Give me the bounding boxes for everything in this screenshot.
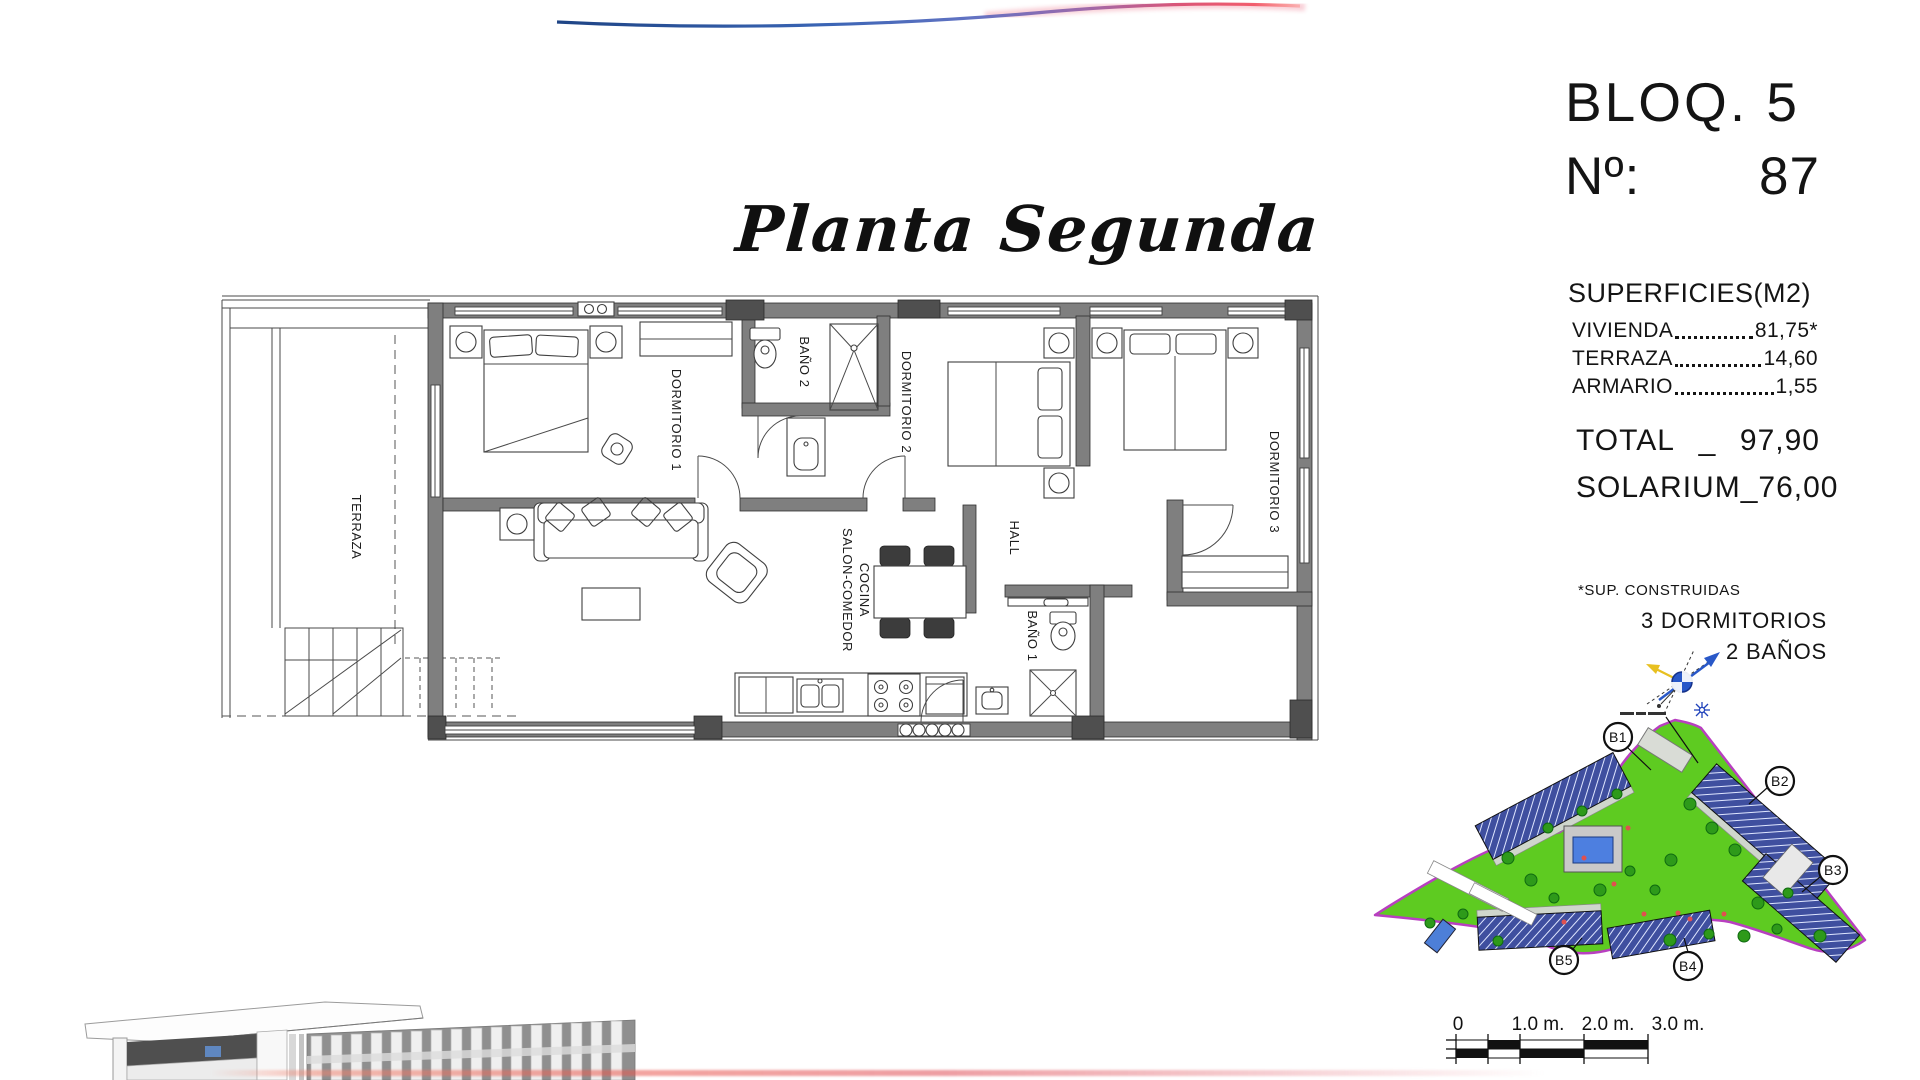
bathroom2-fixtures xyxy=(750,324,878,476)
surface-label: TERRAZA xyxy=(1572,347,1673,371)
scale-3m: 3.0 m. xyxy=(1652,1014,1705,1035)
bottom-gradient-streak xyxy=(210,1070,1545,1076)
scale-2m: 2.0 m. xyxy=(1582,1014,1635,1035)
building-window xyxy=(205,1046,221,1057)
building-pillar xyxy=(113,1038,127,1080)
label-cocina: COCINA xyxy=(857,563,872,617)
label-salon-comedor: SALON-COMEDOR xyxy=(840,528,855,652)
bedrooms-count: 3 DORMITORIOS xyxy=(1565,605,1827,636)
kitchen-counter xyxy=(735,673,1008,716)
armchair xyxy=(702,538,771,607)
dining-set xyxy=(874,546,966,638)
label-bano1: BAÑO 1 xyxy=(1025,610,1040,661)
surface-label: VIVIENDA xyxy=(1572,319,1673,343)
unit-number-label: Nº: xyxy=(1565,146,1640,207)
label-dormitorio1: DORMITORIO 1 xyxy=(669,369,684,471)
label-terraza: TERRAZA xyxy=(349,495,364,560)
scale-bar: 0 1.0 m. 2.0 m. 3.0 m. xyxy=(1438,1004,1750,1080)
building-render-photo xyxy=(25,994,645,1080)
solarium-value: 76,00 xyxy=(1758,471,1838,505)
bedroom3-furniture xyxy=(1092,328,1288,588)
scale-0: 0 xyxy=(1453,1014,1464,1035)
unit-number-value: 87 xyxy=(1759,146,1820,207)
solarium-label: SOLARIUM xyxy=(1576,471,1741,505)
bedroom1-furniture xyxy=(450,322,732,452)
total-value: 97,90 xyxy=(1740,424,1820,458)
vent-circles xyxy=(898,724,970,736)
label-hall: HALL xyxy=(1007,521,1022,556)
top-gradient-swoosh xyxy=(555,0,1315,34)
marker-b1: B1 xyxy=(1609,729,1627,745)
surface-label: ARMARIO xyxy=(1572,375,1673,399)
terrace-stairs xyxy=(285,628,403,716)
brochure-page: Planta Segunda BLOQ. 5 Nº: 87 SUPERFICIE… xyxy=(0,0,1920,1080)
scale-bar-cells xyxy=(1456,1040,1648,1058)
dotted-leader xyxy=(1675,392,1774,395)
compass-ball-wedge xyxy=(1682,671,1693,682)
dotted-leader xyxy=(1675,336,1753,339)
label-dormitorio2: DORMITORIO 2 xyxy=(899,351,914,453)
total-label: TOTAL xyxy=(1576,424,1675,458)
compass-yellow-arrowhead xyxy=(1646,664,1660,674)
living-room-furniture xyxy=(500,431,771,620)
bedroom2-furniture xyxy=(948,328,1074,498)
dotted-leader xyxy=(1675,364,1762,367)
furniture xyxy=(450,322,1288,716)
label-dormitorio3: DORMITORIO 3 xyxy=(1267,431,1282,533)
site-map: B1 B2 B3 B4 B5 xyxy=(1368,708,1892,1010)
surfaces-table: VIVIENDA 81,75* TERRAZA 14,60 ARMARIO 1,… xyxy=(1572,315,1818,399)
marker-b5: B5 xyxy=(1555,952,1573,968)
surfaces-footnote: *SUP. CONSTRUIDAS xyxy=(1578,582,1740,599)
central-pool-area xyxy=(1564,826,1622,872)
totals-block: TOTAL _ 97,90 SOLARIUM _ 76,00 xyxy=(1576,424,1820,518)
solarium-row: SOLARIUM _ 76,00 xyxy=(1576,471,1820,518)
surface-value: 14,60 xyxy=(1763,347,1818,371)
scale-1m: 1.0 m. xyxy=(1512,1014,1565,1035)
washer-icon xyxy=(578,302,614,316)
total-separator: _ xyxy=(1699,424,1717,458)
solarium-separator: _ xyxy=(1741,471,1759,505)
marker-b2: B2 xyxy=(1771,773,1789,789)
surface-value: 81,75* xyxy=(1755,319,1818,343)
surface-row-vivienda: VIVIENDA 81,75* xyxy=(1572,315,1818,343)
marker-b4: B4 xyxy=(1679,958,1697,974)
label-bano2: BAÑO 2 xyxy=(797,336,812,387)
marker-b3: B3 xyxy=(1824,862,1842,878)
total-row: TOTAL _ 97,90 xyxy=(1576,424,1820,471)
surface-value: 1,55 xyxy=(1776,375,1818,399)
surface-row-terraza: TERRAZA 14,60 xyxy=(1572,343,1818,371)
surface-row-armario: ARMARIO 1,55 xyxy=(1572,371,1818,399)
terrace-dashed-steps xyxy=(405,658,500,712)
block-label: BLOQ. 5 xyxy=(1565,70,1800,134)
unit-number-line: Nº: 87 xyxy=(1565,146,1820,207)
floor-plan: TERRAZA DORMITORIO 1 BAÑO 2 DORMITORIO 2… xyxy=(175,240,1335,750)
surfaces-heading: SUPERFICIES(M2) xyxy=(1568,278,1811,309)
bathroom1-fixtures xyxy=(1008,598,1088,716)
